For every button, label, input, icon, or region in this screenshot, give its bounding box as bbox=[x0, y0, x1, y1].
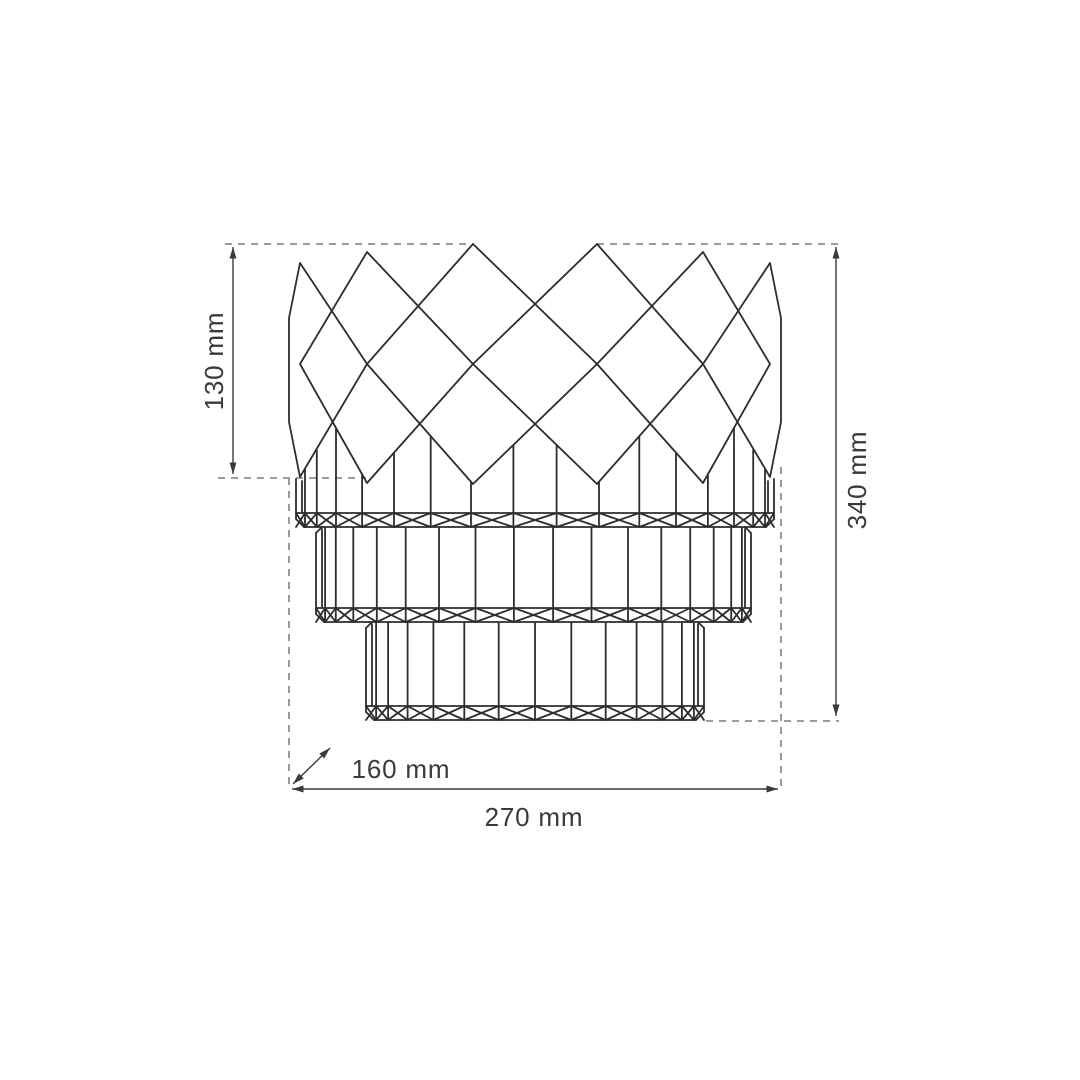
lattice-crown bbox=[289, 244, 781, 484]
crown-height-label: 130 mm bbox=[199, 312, 229, 411]
tier-2-crystal-fringe bbox=[316, 527, 751, 622]
depth-dimension-line bbox=[293, 748, 330, 784]
tier-3-crystal-fringe bbox=[366, 622, 704, 720]
drawing-canvas: 130 mm 340 mm 160 mm 270 mm bbox=[0, 0, 1080, 1080]
tier-1-crystal-fringe bbox=[296, 429, 774, 528]
dimension-labels: 130 mm 340 mm 160 mm 270 mm bbox=[199, 312, 872, 832]
depth-label: 160 mm bbox=[352, 754, 451, 784]
lamp-line-art bbox=[289, 244, 781, 720]
total-height-label: 340 mm bbox=[842, 431, 872, 530]
dashed-extension-lines bbox=[218, 244, 839, 789]
width-label: 270 mm bbox=[485, 802, 584, 832]
lamp-dimension-drawing: 130 mm 340 mm 160 mm 270 mm bbox=[0, 0, 1080, 1080]
